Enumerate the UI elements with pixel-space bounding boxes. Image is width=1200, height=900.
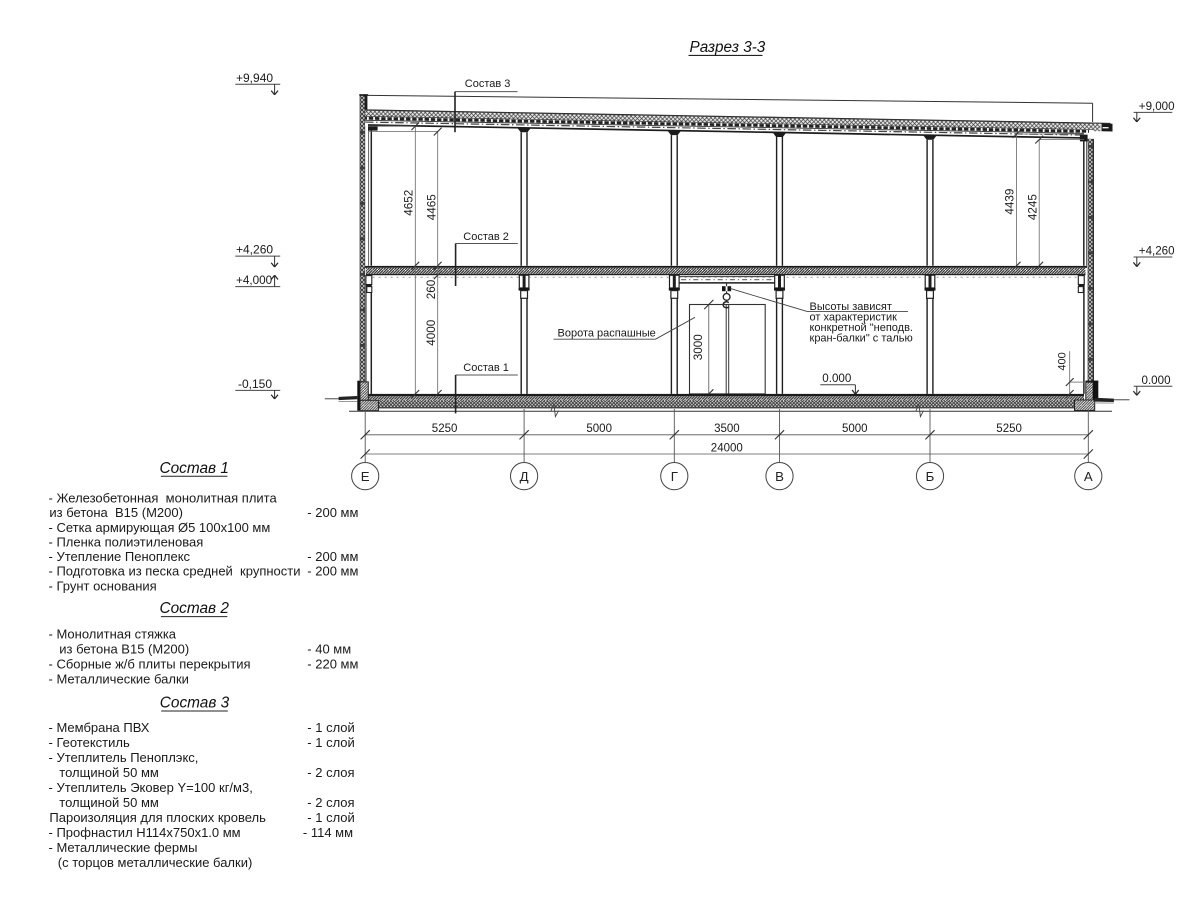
svg-text:+4,260: +4,260 bbox=[236, 243, 273, 257]
svg-text:- Мембрана ПВХ: - Мембрана ПВХ bbox=[49, 720, 150, 735]
svg-text:4652: 4652 bbox=[402, 190, 415, 216]
svg-text:- 1 слой: - 1 слой bbox=[307, 810, 355, 825]
svg-text:3500: 3500 bbox=[714, 423, 740, 435]
svg-text:5250: 5250 bbox=[432, 423, 458, 435]
svg-text:- Профнастил Н114х750х1.0 мм: - Профнастил Н114х750х1.0 мм bbox=[49, 825, 241, 840]
svg-text:- Металлические фермы: - Металлические фермы bbox=[49, 840, 198, 855]
svg-text:Состав 1: Состав 1 bbox=[463, 362, 509, 374]
svg-text:Состав 2: Состав 2 bbox=[463, 231, 509, 243]
svg-text:- Железобетонная монолитная п: - Железобетонная монолитная плита bbox=[49, 491, 278, 506]
svg-text:Состав 1: Состав 1 bbox=[159, 460, 228, 477]
svg-text:кран-балки" с талью: кран-балки" с талью bbox=[810, 333, 913, 345]
svg-text:- 40 мм: - 40 мм bbox=[307, 641, 351, 656]
svg-text:+4,260: +4,260 bbox=[1139, 245, 1175, 258]
svg-text:5250: 5250 bbox=[996, 423, 1022, 435]
svg-text:- Подготовка из песка средней: - Подготовка из песка средней крупности bbox=[49, 564, 301, 579]
svg-text:(с торцов металлические балки): (с торцов металлические балки) bbox=[58, 855, 253, 870]
svg-text:- Металлические балки: - Металлические балки bbox=[49, 672, 189, 687]
svg-text:Разрез 3-3: Разрез 3-3 bbox=[690, 39, 766, 56]
svg-text:из бетона В15 (М200): из бетона В15 (М200) bbox=[49, 505, 183, 520]
svg-text:3000: 3000 bbox=[692, 334, 705, 361]
svg-text:- Сборные ж/б плиты перекрытия: - Сборные ж/б плиты перекрытия bbox=[49, 657, 251, 672]
svg-text:Пароизоляция для плоских крове: Пароизоляция для плоских кровель bbox=[49, 810, 266, 825]
svg-text:Б: Б bbox=[926, 469, 935, 484]
svg-text:+9,000: +9,000 bbox=[1139, 100, 1175, 113]
svg-text:из бетона В15 (М200): из бетона В15 (М200) bbox=[59, 641, 189, 656]
svg-text:- 220 мм: - 220 мм bbox=[307, 657, 358, 672]
svg-text:400: 400 bbox=[1057, 352, 1069, 370]
svg-text:Состав 3: Состав 3 bbox=[160, 695, 230, 712]
svg-text:Ворота распашные: Ворота распашные bbox=[558, 328, 656, 340]
svg-text:0.000: 0.000 bbox=[1142, 374, 1171, 387]
svg-text:- Утепление Пеноплекс: - Утепление Пеноплекс bbox=[49, 549, 191, 564]
svg-text:- Утеплитель Эковер Y=100 кг/м: - Утеплитель Эковер Y=100 кг/м3, bbox=[49, 780, 253, 795]
svg-text:В: В bbox=[775, 469, 784, 484]
svg-text:0.000: 0.000 bbox=[822, 372, 851, 385]
svg-text:- 1 слой: - 1 слой bbox=[307, 720, 355, 735]
svg-text:- Пленка полиэтиленовая: - Пленка полиэтиленовая bbox=[49, 534, 204, 549]
svg-text:- 114 мм: - 114 мм bbox=[303, 825, 353, 840]
svg-text:- 2 слоя: - 2 слоя bbox=[307, 795, 354, 810]
svg-text:Г: Г bbox=[671, 469, 678, 484]
svg-text:+4,000: +4,000 bbox=[236, 274, 273, 287]
svg-text:4465: 4465 bbox=[426, 194, 439, 221]
svg-text:24000: 24000 bbox=[711, 443, 743, 455]
svg-text:- 200 мм: - 200 мм bbox=[307, 564, 358, 579]
svg-text:4439: 4439 bbox=[1003, 189, 1016, 215]
svg-text:- 2 слоя: - 2 слоя bbox=[307, 765, 354, 780]
svg-text:Состав 2: Состав 2 bbox=[159, 600, 229, 617]
svg-text:Состав 3: Состав 3 bbox=[465, 78, 511, 90]
svg-text:- Геотекстиль: - Геотекстиль bbox=[49, 735, 130, 750]
svg-text:-0,150: -0,150 bbox=[238, 377, 272, 391]
svg-text:4245: 4245 bbox=[1027, 194, 1040, 221]
svg-text:толщиной 50 мм: толщиной 50 мм bbox=[59, 765, 159, 780]
svg-text:260: 260 bbox=[425, 279, 438, 299]
svg-text:Д: Д bbox=[520, 469, 529, 484]
svg-text:- 200 мм: - 200 мм bbox=[307, 505, 358, 520]
svg-text:- Утеплитель Пеноплэкс,: - Утеплитель Пеноплэкс, bbox=[49, 750, 199, 765]
svg-text:толщиной 50 мм: толщиной 50 мм bbox=[59, 795, 159, 810]
svg-text:+9,940: +9,940 bbox=[236, 71, 273, 85]
svg-text:- 1 слой: - 1 слой bbox=[307, 735, 355, 750]
svg-text:- Грунт основания: - Грунт основания bbox=[49, 578, 157, 593]
svg-text:- Монолитная стяжка: - Монолитная стяжка bbox=[49, 626, 177, 641]
svg-text:5000: 5000 bbox=[842, 423, 868, 435]
svg-text:Е: Е bbox=[361, 469, 370, 484]
svg-text:А: А bbox=[1084, 469, 1093, 484]
svg-text:- Сетка армирующая Ø5 100х100: - Сетка армирующая Ø5 100х100 мм bbox=[49, 520, 271, 535]
svg-text:- 200 мм: - 200 мм bbox=[307, 549, 358, 564]
svg-text:5000: 5000 bbox=[586, 423, 612, 435]
svg-text:4000: 4000 bbox=[425, 319, 438, 346]
